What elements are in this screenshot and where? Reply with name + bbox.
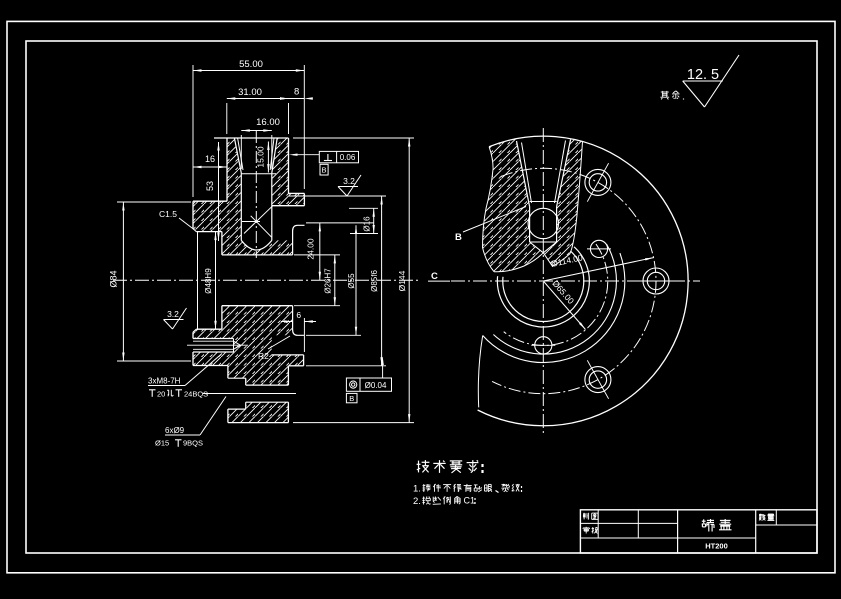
svg-text:55.00: 55.00 [239, 59, 263, 70]
svg-text:B: B [455, 232, 462, 243]
svg-text:6: 6 [296, 310, 301, 320]
svg-text:8: 8 [294, 87, 299, 98]
svg-text:Ø0.04: Ø0.04 [365, 381, 387, 390]
svg-text:B: B [321, 165, 326, 174]
svg-text:24BQS: 24BQS [184, 390, 208, 399]
svg-text:C1: C1 [464, 496, 476, 506]
svg-text:Ø85f6: Ø85f6 [370, 270, 379, 292]
svg-text:Ø144: Ø144 [397, 270, 407, 291]
svg-text:Ø15: Ø15 [155, 439, 169, 448]
svg-text:3xM8-7H: 3xM8-7H [148, 377, 181, 386]
svg-text:C1.5: C1.5 [159, 209, 177, 219]
svg-text:16: 16 [205, 154, 215, 164]
svg-text:16.00: 16.00 [256, 117, 280, 128]
svg-text:R2: R2 [258, 351, 269, 361]
svg-text:2.: 2. [413, 496, 421, 507]
svg-text:Ø16: Ø16 [362, 216, 371, 232]
svg-text:Ø55: Ø55 [347, 273, 356, 289]
svg-text:24.00: 24.00 [306, 238, 316, 260]
svg-text:3.2: 3.2 [167, 309, 179, 319]
svg-text:C: C [431, 271, 438, 282]
svg-text:6xØ9: 6xØ9 [165, 426, 185, 435]
svg-text:1.: 1. [413, 484, 421, 495]
svg-text:31.00: 31.00 [238, 87, 262, 98]
svg-text:9BQS: 9BQS [183, 439, 203, 448]
svg-text:20: 20 [157, 390, 165, 399]
svg-text:Ø48H9: Ø48H9 [204, 268, 213, 294]
svg-text:HT200: HT200 [705, 542, 728, 551]
svg-text:Ø84: Ø84 [109, 270, 119, 287]
svg-text:Ø26H7: Ø26H7 [323, 268, 332, 294]
svg-text:15.00: 15.00 [256, 146, 266, 168]
svg-text:53: 53 [205, 181, 215, 191]
svg-text:B: B [349, 394, 354, 403]
svg-text:3.2: 3.2 [343, 176, 355, 186]
svg-text:0.06: 0.06 [340, 153, 356, 162]
